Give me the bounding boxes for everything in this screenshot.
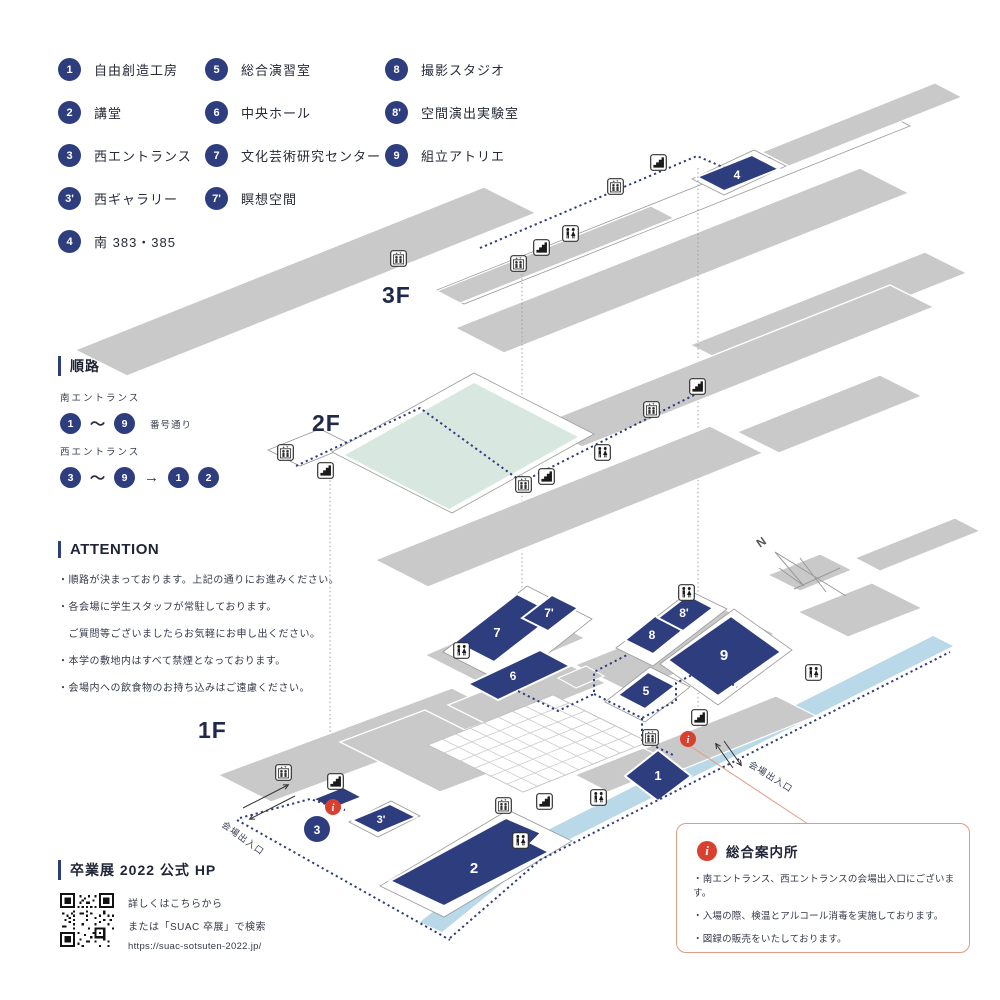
room-8p-label: 8' xyxy=(679,606,689,620)
stairs-icon xyxy=(328,774,344,790)
restroom-icon xyxy=(595,445,611,461)
room-5-label: 5 xyxy=(643,684,650,698)
room-3p-label: 3' xyxy=(377,814,386,826)
floor-2f: 2F xyxy=(268,285,934,587)
stairs-icon xyxy=(690,379,706,395)
3f-back-segment-east xyxy=(762,83,962,166)
compass-n-label: N xyxy=(754,534,769,550)
elevator-icon xyxy=(511,256,527,272)
info-box-title: 総合案内所 xyxy=(726,841,799,861)
stairs-icon xyxy=(537,794,553,810)
floor-label-2f: 2F xyxy=(312,410,341,436)
elevator-icon xyxy=(644,402,660,418)
elevator-icon xyxy=(496,798,512,814)
floor-label-3f: 3F xyxy=(382,282,411,308)
west-entrance-label: 会場出入口 xyxy=(220,819,267,857)
stairs-icon xyxy=(651,155,667,171)
elevator-icon xyxy=(608,179,624,195)
room-6-label: 6 xyxy=(510,669,517,683)
room-8-label: 8 xyxy=(649,628,656,642)
elevator-icon xyxy=(643,730,659,746)
elevator-icon xyxy=(276,765,292,781)
room-2-label: 2 xyxy=(470,860,478,877)
2f-east-band xyxy=(737,375,922,453)
elevator-icon xyxy=(278,445,294,461)
room-4-label: 4 xyxy=(734,168,741,182)
info-box-line: ・南エントランス、西エントランスの会場出入口にございます。 xyxy=(693,871,969,899)
restroom-icon xyxy=(679,585,695,601)
1f-northeast-strip xyxy=(855,518,980,571)
information-desk-box: i 総合案内所 ・南エントランス、西エントランスの会場出入口にございます。 ・入… xyxy=(676,823,970,953)
elevator-icon xyxy=(516,477,532,493)
stairs-icon xyxy=(318,463,334,479)
room-9-label: 9 xyxy=(720,647,728,664)
stairs-icon xyxy=(539,469,555,485)
room-7-label: 7 xyxy=(493,625,500,640)
room-1-label: 1 xyxy=(654,768,661,783)
room-3-label: 3 xyxy=(314,823,321,837)
info-icon: i xyxy=(697,841,717,861)
info-marker-south: i xyxy=(680,731,696,747)
stairs-icon xyxy=(692,710,708,726)
restroom-icon xyxy=(591,790,607,806)
info-icon: i xyxy=(687,735,690,746)
floor-label-1f: 1F xyxy=(198,717,227,743)
restroom-icon xyxy=(513,833,529,849)
info-box-line: ・入場の際、検温とアルコール消毒を実施しております。 xyxy=(693,908,969,922)
restroom-icon xyxy=(806,665,822,681)
1f-east-block-b xyxy=(798,583,922,637)
restroom-icon xyxy=(454,643,470,659)
room-7p-label: 7' xyxy=(544,606,554,620)
info-box-line: ・図録の販売をいたしております。 xyxy=(693,931,969,945)
2f-gallery-highlight xyxy=(345,383,578,509)
restroom-icon xyxy=(563,226,579,242)
elevator-icon xyxy=(391,251,407,267)
info-marker-west: i xyxy=(325,799,341,815)
stairs-icon xyxy=(534,240,550,256)
1f-east-block-a xyxy=(768,554,852,591)
info-icon: i xyxy=(332,803,335,814)
